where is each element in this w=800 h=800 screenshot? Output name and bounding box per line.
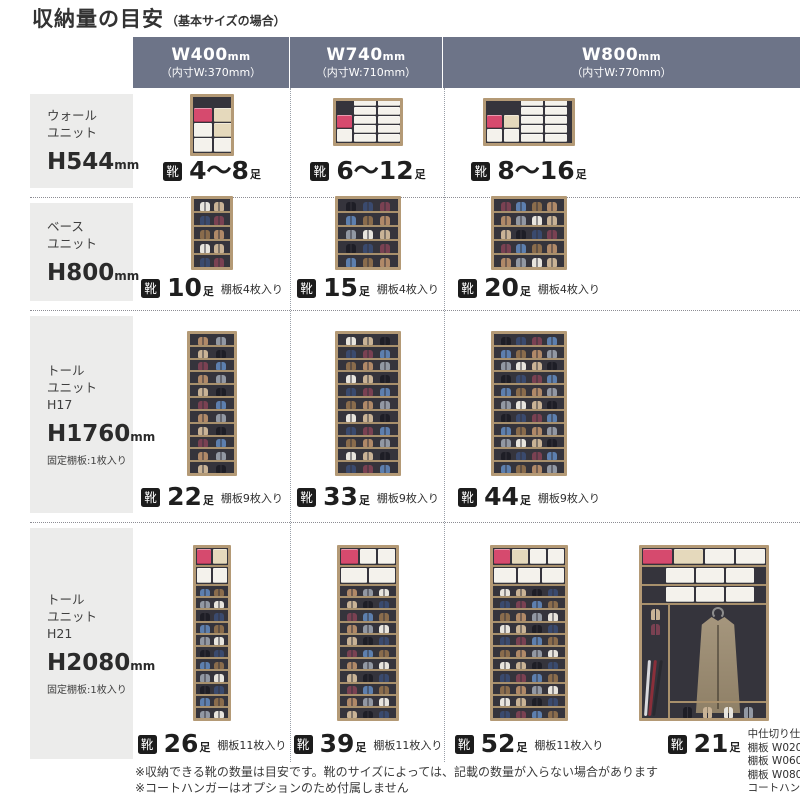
shoe-pair <box>547 439 557 447</box>
column-size-unit: mm <box>228 51 251 63</box>
shoe-pair <box>214 601 224 609</box>
shoe-pair <box>216 337 226 345</box>
shoe-pair <box>724 707 733 718</box>
shoe-icon: 靴 <box>297 488 316 507</box>
cabinet-illustration <box>190 94 234 156</box>
shoe-pair <box>516 375 526 383</box>
shoe-shelf-row <box>194 199 230 213</box>
unit-row: トールユニットH21H2080mm固定棚板:1枚入り靴26足棚板11枚入り靴39… <box>0 522 800 768</box>
column-size-value: W740 <box>326 45 382 65</box>
column-header: W740mm（内寸W:710mm） <box>290 37 442 88</box>
capacity-count: 52 <box>481 731 516 756</box>
shoe-pair <box>532 465 542 473</box>
shoe-pair <box>214 202 224 211</box>
shoe-pair <box>532 216 542 225</box>
capacity-caption: 靴21足中仕切り仕様棚板 W020 2枚入り棚板 W060 2枚入り棚板 W08… <box>668 731 741 756</box>
capacity-cell: 靴39足棚板11枚入り <box>291 522 445 768</box>
cabinet-illustration <box>333 98 403 146</box>
shoe-pair <box>380 350 390 358</box>
shoe-box <box>214 123 231 137</box>
unit-type-label: ベース <box>47 218 133 235</box>
capacity-note-line: 棚板 W020 2枚入り <box>748 742 800 756</box>
shoe-pair <box>363 230 373 239</box>
shoe-pair <box>500 637 510 645</box>
shoe-shelf-row <box>493 635 565 647</box>
shoe-shelf-row <box>338 347 398 360</box>
shoe-pair <box>200 650 210 658</box>
shoe-pair <box>547 230 557 239</box>
shoe-shelf-row <box>190 385 234 398</box>
shoe-box <box>521 116 543 124</box>
shoe-shelf-row <box>494 462 564 473</box>
cabinet-illustration <box>491 331 567 476</box>
unit-sidebar: ベースユニットH800mm <box>30 203 133 301</box>
shoe-shelf-row <box>196 647 228 659</box>
shoe-shelf-row <box>493 684 565 696</box>
capacity-note-line: 中仕切り仕様 <box>748 728 800 742</box>
shoe-shelf-row <box>340 684 396 696</box>
column-size: W740mm <box>326 45 405 66</box>
shoe-icon: 靴 <box>294 735 313 754</box>
shoe-pair <box>346 350 356 358</box>
shoe-pair <box>214 698 224 706</box>
shoe-pair <box>216 452 226 460</box>
hanger-hook-icon <box>712 607 724 619</box>
capacity-count-unit: 足 <box>520 492 531 509</box>
shoe-pair <box>516 216 526 225</box>
shoe-pair <box>216 414 226 422</box>
shoe-box-stacks <box>193 97 231 153</box>
shoe-pair <box>363 258 373 267</box>
shoe-pair <box>347 686 357 694</box>
shoe-pair <box>379 686 389 694</box>
shoe-pair <box>198 452 208 460</box>
shoe-pair <box>346 452 356 460</box>
unit-type-label: ユニット <box>47 608 133 625</box>
shoe-box <box>521 107 543 115</box>
capacity-caption: 靴15足棚板4枚入り <box>297 275 439 300</box>
shoe-pair <box>200 244 210 253</box>
shoe-pair <box>516 711 526 718</box>
capacity-count: 20 <box>484 275 519 300</box>
shoe-box-stack <box>378 101 400 142</box>
capacity-count-unit: 足 <box>355 739 366 756</box>
shoe-box <box>521 101 543 106</box>
shoe-pair <box>532 244 542 253</box>
shoe-icon: 靴 <box>471 162 490 181</box>
shoe-pair <box>516 258 526 267</box>
shoe-shelf-row <box>340 598 396 610</box>
unit-sidebar: トールユニットH21H2080mm固定棚板:1枚入り <box>30 528 133 759</box>
shoe-icon: 靴 <box>138 735 157 754</box>
shoe-pair <box>500 613 510 621</box>
shoe-pair <box>532 711 542 718</box>
shoe-shelf-row <box>494 241 564 255</box>
cabinet-zone <box>335 331 401 476</box>
shoe-box <box>545 107 567 115</box>
shoe-pair <box>379 589 389 597</box>
shoe-shelf-row <box>338 385 398 398</box>
shoe-pair <box>198 362 208 370</box>
shoe-shelf-row <box>494 255 564 267</box>
capacity-count-unit: 足 <box>359 492 370 509</box>
capacity-count-unit: 足 <box>250 166 261 183</box>
shoe-pair <box>501 375 511 383</box>
shoe-box <box>530 549 546 564</box>
shoe-shelf-row <box>196 586 228 598</box>
shoe-pair <box>501 439 511 447</box>
shoe-pair <box>516 350 526 358</box>
unit-type-label: ユニット <box>47 379 133 396</box>
cabinet-illustration <box>483 98 575 146</box>
unit-row: ベースユニットH800mm靴10足棚板4枚入り靴15足棚板4枚入り靴20足棚板4… <box>0 197 800 310</box>
capacity-caption: 靴4～8足 <box>163 158 261 183</box>
shoe-shelf-row <box>194 213 230 227</box>
shoe-pair <box>532 337 542 345</box>
shoe-box <box>197 549 211 564</box>
unit-height-value: H544 <box>47 149 114 175</box>
bottom-shoe-shelf <box>670 701 766 718</box>
column-size-value: W400 <box>171 45 227 65</box>
shoe-pair <box>516 625 526 633</box>
shoe-pair <box>379 625 389 633</box>
unit-type-label: ウォール <box>47 107 133 124</box>
shoe-shelf-row <box>190 424 234 437</box>
shoe-pair <box>198 439 208 447</box>
shoe-box <box>354 101 376 106</box>
shoe-pair <box>501 452 511 460</box>
cabinet-illustration <box>335 196 401 270</box>
shoe-pair <box>214 637 224 645</box>
page-title: 収納量の目安 （基本サイズの場合） <box>32 8 286 31</box>
unit-height-value: H2080 <box>47 650 130 676</box>
shoe-pair <box>547 362 557 370</box>
shoe-pair <box>346 244 356 253</box>
shoe-pair <box>501 216 511 225</box>
cabinet-interior <box>493 548 565 718</box>
shoe-box <box>378 134 400 142</box>
capacity-count: 21 <box>694 731 729 756</box>
trench-coat <box>691 617 745 713</box>
shoe-pair <box>651 609 660 620</box>
unit-type-label: ユニット <box>47 235 133 252</box>
shoe-pair <box>363 650 373 658</box>
shoe-box <box>378 101 400 106</box>
shoe-box-stack <box>521 101 543 142</box>
shoe-box-row <box>340 567 396 586</box>
shoe-shelf-row <box>196 671 228 683</box>
shoe-box <box>545 116 567 124</box>
unit-type-label: H17 <box>47 396 133 413</box>
shoe-box <box>341 549 358 564</box>
unit-type-label: ユニット <box>47 124 133 141</box>
shoe-shelf-row <box>494 372 564 385</box>
shoe-shelf-row <box>494 199 564 213</box>
shelf-count-note: 棚板4枚入り <box>538 281 600 300</box>
shoe-box-row <box>340 548 396 567</box>
shoe-pair <box>547 388 557 396</box>
shoe-shelf-row <box>340 708 396 718</box>
capacity-caption: 靴8～16足 <box>471 158 586 183</box>
shelf-count-note: 棚板4枚入り <box>221 281 283 300</box>
shoe-pair <box>532 650 542 658</box>
shoe-box <box>521 125 543 133</box>
shoe-pair <box>198 427 208 435</box>
shoe-pair <box>379 674 389 682</box>
capacity-count: 10 <box>167 275 202 300</box>
shoe-pair <box>363 388 373 396</box>
shoe-pair <box>200 216 210 225</box>
shoe-box-stack <box>337 115 352 142</box>
shoe-pair <box>532 439 542 447</box>
shoe-pair <box>363 465 373 473</box>
shoe-box <box>643 549 672 564</box>
shoe-pair <box>547 350 557 358</box>
cabinet-interior <box>494 334 564 473</box>
column-size: W400mm <box>171 45 250 66</box>
shoe-pair <box>532 637 542 645</box>
shoe-pair <box>380 401 390 409</box>
shoe-pair <box>363 427 373 435</box>
shoe-pair <box>532 601 542 609</box>
shoe-pair <box>380 375 390 383</box>
shoe-shelf-row <box>340 610 396 622</box>
shoe-box <box>512 549 528 564</box>
shoe-shelf-row <box>190 347 234 360</box>
cabinet-illustration <box>191 196 233 270</box>
shoe-pair <box>548 650 558 658</box>
shoe-shelf-row <box>338 241 398 255</box>
shoe-box <box>494 549 510 564</box>
shoe-box <box>487 129 502 142</box>
capacity-count-unit: 足 <box>576 166 587 183</box>
shoe-pair <box>363 337 373 345</box>
shoe-box <box>666 568 694 583</box>
unit-type-label: トール <box>47 362 133 379</box>
shoe-pair <box>501 258 511 267</box>
cabinet-interior <box>196 548 228 718</box>
shoe-pair <box>363 625 373 633</box>
unit-height: H2080mm <box>47 651 133 675</box>
shoe-pair <box>347 674 357 682</box>
shoe-box-row <box>196 567 228 586</box>
shoe-pair <box>516 662 526 670</box>
shoe-pair <box>548 625 558 633</box>
shoe-pair <box>346 258 356 267</box>
shoe-pair <box>363 350 373 358</box>
shoe-shelf-row <box>494 424 564 437</box>
column-size-unit: mm <box>383 51 406 63</box>
cabinet-illustration <box>187 331 237 476</box>
capacity-caption: 靴33足棚板9枚入り <box>297 484 439 509</box>
shoe-box-row <box>642 548 766 567</box>
shoe-pair <box>547 258 557 267</box>
capacity-cell: 靴20足棚板4枚入り <box>445 197 613 310</box>
side-column <box>642 605 670 718</box>
shoe-pair <box>346 375 356 383</box>
shoe-pair <box>532 414 542 422</box>
shoe-pair <box>501 337 511 345</box>
capacity-note-line: 棚板 W080 2枚入り <box>748 769 800 783</box>
capacity-cell: 靴44足棚板9枚入り <box>445 310 613 522</box>
shoe-box <box>726 568 754 583</box>
shoe-shelf-row <box>493 671 565 683</box>
shoe-box-stacks <box>486 101 572 143</box>
shoe-icon: 靴 <box>668 735 687 754</box>
shoe-shelf-row <box>190 372 234 385</box>
shoe-pair <box>363 637 373 645</box>
shoe-box <box>213 549 227 564</box>
column-header: W800mm（内寸W:770mm） <box>443 37 800 88</box>
shoe-shelf-row <box>338 334 398 347</box>
shoe-box <box>545 134 567 142</box>
shoe-box <box>542 568 564 583</box>
shoe-pair <box>198 465 208 473</box>
shoe-pair <box>346 414 356 422</box>
shoe-pair <box>516 589 526 597</box>
shoe-pair <box>200 674 210 682</box>
cabinet-zone <box>187 331 237 476</box>
shoe-pair <box>547 216 557 225</box>
shoe-pair <box>198 350 208 358</box>
shoe-box <box>197 568 211 583</box>
shoe-box <box>378 549 395 564</box>
shoe-pair <box>548 601 558 609</box>
shoe-pair <box>500 589 510 597</box>
cabinet-interior <box>336 101 400 143</box>
shoe-pair <box>516 439 526 447</box>
shoe-pair <box>516 414 526 422</box>
column-size-unit: mm <box>638 51 661 63</box>
shoe-pair <box>703 707 712 718</box>
shoe-box-row <box>196 548 228 567</box>
shoe-shelf-row <box>493 610 565 622</box>
shoe-shelf-row <box>190 334 234 347</box>
shoe-pair <box>347 637 357 645</box>
shoe-pair <box>532 388 542 396</box>
shoe-pair <box>532 350 542 358</box>
capacity-count-unit: 足 <box>520 283 531 300</box>
shoe-pair <box>198 401 208 409</box>
shoe-pair <box>516 337 526 345</box>
shoe-pair <box>200 625 210 633</box>
shoe-shelf-row <box>493 586 565 598</box>
cabinet-interior <box>642 548 766 718</box>
shoe-pair <box>363 362 373 370</box>
shoe-pair <box>380 439 390 447</box>
shoe-shelf-row <box>194 227 230 241</box>
shoe-pair <box>380 230 390 239</box>
shoe-shelf-row <box>493 696 565 708</box>
shoe-shelf-row <box>338 372 398 385</box>
capacity-caption: 靴10足棚板4枚入り <box>141 275 283 300</box>
shoe-pair <box>346 337 356 345</box>
capacity-count-unit: 足 <box>203 283 214 300</box>
shoe-icon: 靴 <box>297 279 316 298</box>
shoe-shelf-row <box>494 227 564 241</box>
unit-sidebar: トールユニットH17H1760mm固定棚板:1枚入り <box>30 316 133 513</box>
shoe-pair <box>200 258 210 267</box>
shoe-pair <box>379 637 389 645</box>
cabinet-interior <box>338 199 398 267</box>
shoe-box <box>214 138 231 152</box>
shoe-shelf-row <box>338 199 398 213</box>
shoe-pair <box>363 589 373 597</box>
shoe-box <box>354 116 376 124</box>
cabinet-zone <box>333 98 403 156</box>
shoe-icon: 靴 <box>458 279 477 298</box>
shoe-pair <box>548 686 558 694</box>
unit-row: トールユニットH17H1760mm固定棚板:1枚入り靴22足棚板9枚入り靴33足… <box>0 310 800 522</box>
shoe-pair <box>346 401 356 409</box>
column-inner-size: （内寸W:710mm） <box>316 66 416 80</box>
shoe-box <box>674 549 703 564</box>
shoe-shelf-row <box>493 598 565 610</box>
capacity-count-unit: 足 <box>729 739 740 756</box>
capacity-caption: 靴44足棚板9枚入り <box>458 484 600 509</box>
shoe-pair <box>347 698 357 706</box>
shoe-pair <box>548 589 558 597</box>
shoe-pair <box>347 589 357 597</box>
cabinet-zone <box>491 331 567 476</box>
shoe-box <box>194 138 212 152</box>
shoe-pair <box>501 401 511 409</box>
shoe-shelf-row <box>494 411 564 424</box>
shoe-box-stack <box>504 115 519 142</box>
shoe-pair <box>214 613 224 621</box>
shoe-pair <box>200 202 210 211</box>
shoe-shelf-row <box>190 449 234 462</box>
shoe-pair <box>500 662 510 670</box>
shoe-pair <box>501 465 511 473</box>
shoe-pair <box>347 650 357 658</box>
shoe-box <box>378 107 400 115</box>
shoe-icon: 靴 <box>455 735 474 754</box>
shoe-pair <box>548 662 558 670</box>
capacity-count: 26 <box>164 731 199 756</box>
shoe-pair <box>501 388 511 396</box>
column-header: W400mm（内寸W:370mm） <box>133 37 289 88</box>
shoe-pair <box>200 230 210 239</box>
shoe-pair <box>363 711 373 718</box>
shoe-pair <box>516 465 526 473</box>
shoe-shelf-row <box>338 437 398 450</box>
shoe-pair <box>547 337 557 345</box>
cabinet-zone <box>490 545 568 721</box>
unit-height: H1760mm <box>47 422 133 446</box>
shoe-pair <box>516 601 526 609</box>
shoe-box <box>705 549 734 564</box>
shoe-pair <box>214 244 224 253</box>
shoe-pair <box>516 613 526 621</box>
capacity-count-unit: 足 <box>203 492 214 509</box>
capacity-cell: 靴52足棚板11枚入り <box>445 522 613 768</box>
footnote: ※コートハンガーはオプションのため付属しません <box>135 780 658 796</box>
shoe-pair <box>547 202 557 211</box>
shelf-count-note: 棚板11枚入り <box>373 737 442 756</box>
capacity-cell: 靴6～12足 <box>291 88 445 197</box>
shoe-pair <box>547 427 557 435</box>
capacity-note-line: コートハンガー <box>748 782 800 796</box>
shoe-pair <box>347 613 357 621</box>
shoe-shelf-row <box>493 623 565 635</box>
shoe-shelf-row <box>196 610 228 622</box>
shoe-box <box>354 125 376 133</box>
cabinet-illustration <box>639 545 769 721</box>
shoe-box <box>354 134 376 142</box>
shoe-pair <box>532 589 542 597</box>
shelf-count-note: 棚板11枚入り <box>217 737 286 756</box>
